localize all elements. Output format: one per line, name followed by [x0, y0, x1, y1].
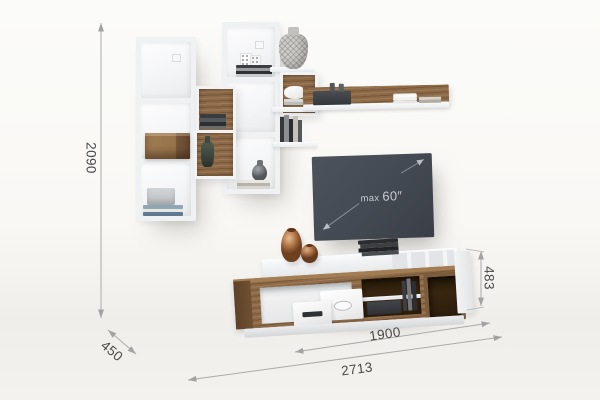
file-spine	[412, 281, 418, 310]
glass-bottle-neck	[205, 136, 210, 143]
storage-box-slot-opening	[302, 311, 322, 317]
storage-basket	[147, 188, 175, 205]
plate-stack	[393, 93, 417, 104]
dark-vase-neck	[257, 160, 263, 166]
cubby-divider	[407, 252, 412, 268]
book-spine	[298, 120, 302, 143]
stand-open-compartment-middle	[361, 276, 421, 318]
file-holders	[401, 278, 419, 311]
wooden-crate	[145, 133, 190, 159]
books-stack	[237, 180, 270, 189]
wall-wood-box-lower	[194, 130, 236, 179]
books-stack-on-stand	[358, 238, 399, 257]
book-spine	[143, 212, 183, 216]
storage-box-oval-badge	[334, 300, 353, 311]
product-render-scene: max60″	[0, 0, 600, 400]
plate	[393, 100, 417, 104]
book-spine	[419, 100, 441, 103]
lying-books	[419, 97, 441, 103]
dimension-label-stand-height: 483	[482, 266, 497, 290]
copper-vase-mouth	[306, 244, 313, 247]
glass-bottle	[201, 141, 214, 167]
stand-left-side-panel	[233, 280, 253, 329]
book-spine	[200, 126, 226, 129]
tv-size-label-prefix: max	[360, 193, 379, 205]
speaker-box	[367, 300, 402, 315]
tv-stand	[231, 239, 476, 342]
dimension-label-total-height: 2090	[84, 142, 99, 174]
copper-vase-tall	[281, 228, 302, 262]
book-spine	[237, 186, 270, 189]
candlestick	[339, 84, 344, 92]
copper-vase-mouth	[287, 228, 296, 232]
book-spine	[236, 74, 272, 77]
media-box	[313, 91, 351, 106]
wall-mount-bracket	[255, 41, 264, 49]
tv-size-label-value: 60″	[382, 188, 402, 204]
stand-right-side-panel	[454, 251, 474, 314]
cubby-divider	[443, 250, 448, 266]
patterned-vase	[279, 33, 308, 69]
wall-shelf-board	[273, 142, 317, 147]
books-stack	[236, 65, 272, 77]
tv-screen: max60″	[312, 153, 435, 241]
wall-shelf	[303, 80, 450, 113]
vertical-books	[280, 113, 305, 143]
copper-vase-small	[301, 244, 318, 263]
wall-cabinet-left	[136, 37, 196, 221]
dimension-label-stand-width: 1900	[368, 324, 402, 344]
wall-mount-bracket	[172, 54, 181, 62]
dark-vase	[252, 164, 267, 181]
patterned-vase-neck	[288, 27, 299, 35]
candlestick	[330, 83, 335, 92]
books-stack	[200, 114, 226, 129]
dimension-label-depth: 450	[98, 338, 126, 365]
cabinet-compartment	[141, 42, 191, 98]
tv-size-label: max60″	[360, 187, 402, 206]
dimension-label-total-width: 2713	[340, 359, 373, 378]
books-stack	[143, 205, 183, 216]
cubby-divider	[425, 251, 430, 267]
